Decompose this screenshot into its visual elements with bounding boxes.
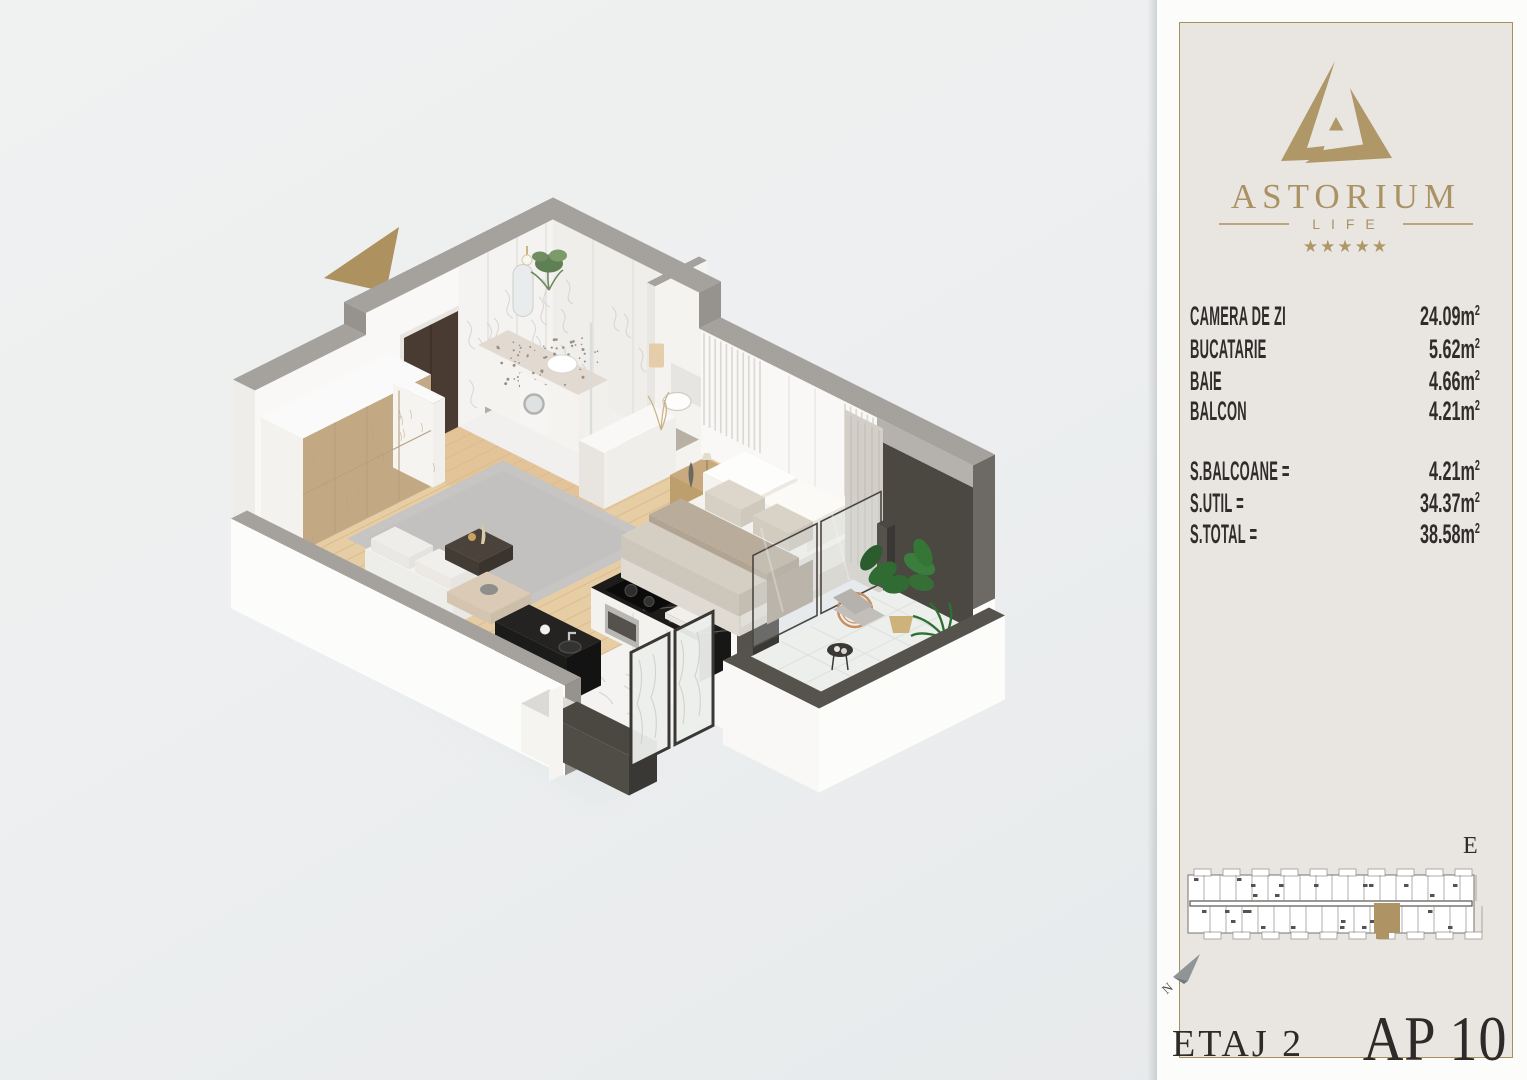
svg-text:N: N	[1159, 979, 1176, 997]
